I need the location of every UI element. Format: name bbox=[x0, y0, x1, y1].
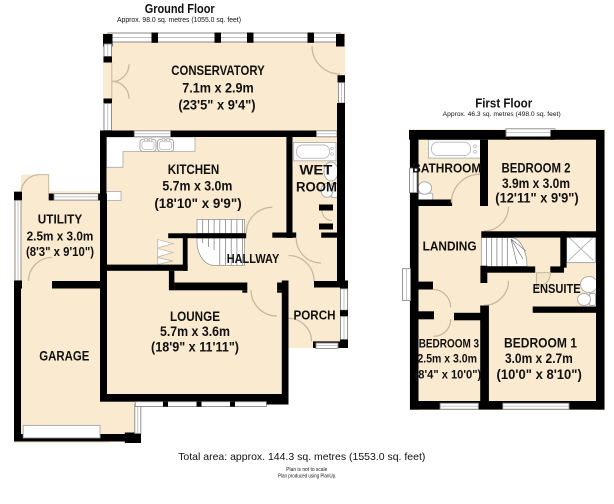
svg-text:Approx. 98.0 sq. metres (1055.: Approx. 98.0 sq. metres (1055.0 sq. feet… bbox=[117, 17, 241, 24]
svg-text:PORCH: PORCH bbox=[294, 309, 336, 323]
svg-text:7.1m x 2.9m: 7.1m x 2.9m bbox=[182, 80, 254, 96]
svg-text:HALLWAY: HALLWAY bbox=[227, 251, 280, 266]
svg-text:(18'9" x 11'11"): (18'9" x 11'11") bbox=[151, 340, 239, 355]
svg-text:LOUNGE: LOUNGE bbox=[170, 309, 220, 324]
svg-text:Approx. 46.3 sq. metres (498.0: Approx. 46.3 sq. metres (498.0 sq. feet) bbox=[443, 111, 561, 118]
svg-text:BATHROOM: BATHROOM bbox=[412, 160, 481, 175]
svg-text:LANDING: LANDING bbox=[423, 239, 477, 254]
svg-text:First Floor: First Floor bbox=[475, 95, 532, 110]
svg-text:BEDROOM 1: BEDROOM 1 bbox=[504, 336, 577, 351]
svg-text:KITCHEN: KITCHEN bbox=[168, 162, 220, 177]
svg-text:ENSUITE: ENSUITE bbox=[533, 281, 581, 296]
svg-text:5.7m x 3.6m: 5.7m x 3.6m bbox=[160, 324, 230, 339]
svg-text:UTILITY: UTILITY bbox=[38, 212, 83, 227]
svg-text:ROOM: ROOM bbox=[296, 180, 337, 195]
svg-text:3.0m x 2.7m: 3.0m x 2.7m bbox=[505, 351, 573, 366]
svg-text:3.9m x 3.0m: 3.9m x 3.0m bbox=[502, 176, 570, 191]
svg-text:Ground Floor: Ground Floor bbox=[145, 1, 215, 16]
svg-text:Plan produced using PlanUp.: Plan produced using PlanUp. bbox=[278, 474, 336, 480]
svg-text:Total area: approx. 144.3 sq.: Total area: approx. 144.3 sq. metres (15… bbox=[178, 451, 425, 463]
svg-text:(23'5" x 9'4"): (23'5" x 9'4") bbox=[178, 96, 255, 112]
svg-text:2.5m x 3.0m: 2.5m x 3.0m bbox=[27, 229, 94, 244]
svg-text:(12'11" x 9'9"): (12'11" x 9'9") bbox=[495, 191, 578, 206]
svg-text:(8'4" x 10'0"): (8'4" x 10'0") bbox=[415, 369, 482, 381]
svg-text:(18'10" x 9'9"): (18'10" x 9'9") bbox=[154, 196, 241, 211]
svg-text:(10'0" x 8'10"): (10'0" x 8'10") bbox=[497, 367, 582, 382]
svg-text:5.7m x 3.0m: 5.7m x 3.0m bbox=[162, 179, 232, 194]
svg-text:CONSERVATORY: CONSERVATORY bbox=[171, 62, 265, 78]
svg-text:Plan is not to scale: Plan is not to scale bbox=[286, 467, 327, 473]
svg-text:BEDROOM 3: BEDROOM 3 bbox=[419, 339, 479, 351]
svg-text:(8'3" x 9'10"): (8'3" x 9'10") bbox=[26, 244, 94, 259]
svg-text:2.5m x 3.0m: 2.5m x 3.0m bbox=[417, 354, 477, 366]
svg-text:GARAGE: GARAGE bbox=[39, 348, 89, 363]
svg-text:WET: WET bbox=[299, 163, 333, 178]
svg-text:BEDROOM 2: BEDROOM 2 bbox=[502, 161, 571, 176]
